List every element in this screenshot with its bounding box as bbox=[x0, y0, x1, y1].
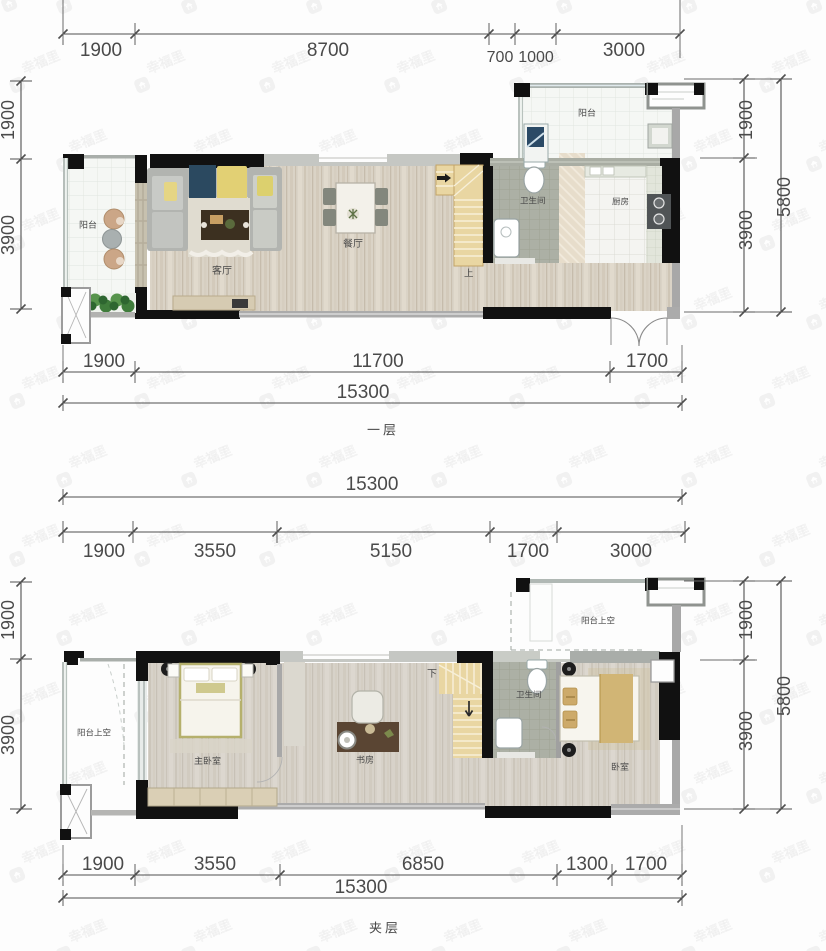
svg-text:8700: 8700 bbox=[307, 40, 349, 61]
svg-text:3000: 3000 bbox=[610, 541, 652, 562]
svg-text:3900: 3900 bbox=[0, 715, 18, 755]
svg-text:6850: 6850 bbox=[402, 854, 444, 875]
svg-text:1900: 1900 bbox=[80, 40, 122, 61]
svg-text:3900: 3900 bbox=[736, 711, 756, 751]
svg-text:1900: 1900 bbox=[83, 541, 125, 562]
svg-text:3900: 3900 bbox=[0, 215, 18, 255]
svg-text:1700: 1700 bbox=[625, 854, 667, 875]
svg-text:1900: 1900 bbox=[0, 600, 18, 640]
svg-text:1900: 1900 bbox=[83, 351, 125, 372]
svg-text:1900: 1900 bbox=[736, 100, 756, 140]
svg-text:3900: 3900 bbox=[736, 210, 756, 250]
svg-text:1900: 1900 bbox=[0, 100, 18, 140]
svg-text:5800: 5800 bbox=[774, 177, 794, 217]
svg-text:15300: 15300 bbox=[346, 474, 399, 495]
svg-text:11700: 11700 bbox=[352, 351, 403, 372]
svg-text:1700: 1700 bbox=[507, 541, 549, 562]
svg-text:1300: 1300 bbox=[566, 854, 608, 875]
svg-text:1000: 1000 bbox=[518, 49, 554, 66]
svg-text:3550: 3550 bbox=[194, 541, 236, 562]
svg-text:5150: 5150 bbox=[370, 541, 412, 562]
svg-text:15300: 15300 bbox=[337, 382, 390, 403]
svg-text:3000: 3000 bbox=[603, 40, 645, 61]
svg-text:15300: 15300 bbox=[335, 877, 388, 898]
svg-text:700: 700 bbox=[487, 49, 514, 66]
svg-text:1700: 1700 bbox=[626, 351, 668, 372]
svg-text:3550: 3550 bbox=[194, 854, 236, 875]
svg-text:1900: 1900 bbox=[736, 600, 756, 640]
svg-text:5800: 5800 bbox=[774, 676, 794, 716]
svg-text:1900: 1900 bbox=[82, 854, 124, 875]
